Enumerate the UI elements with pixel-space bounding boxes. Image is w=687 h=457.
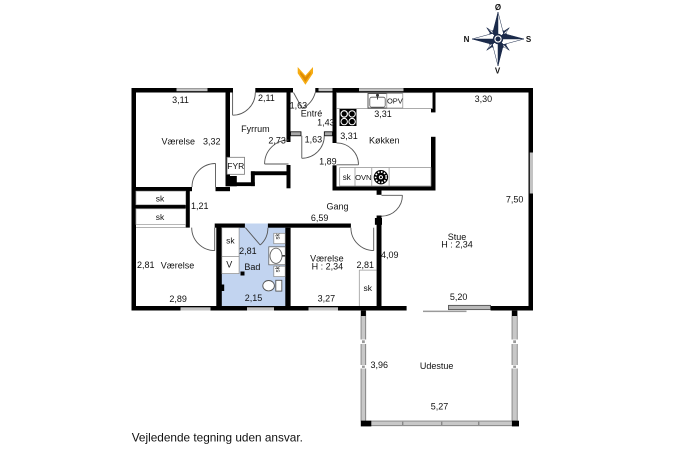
- svg-text:5,20: 5,20: [450, 292, 468, 302]
- svg-text:4,09: 4,09: [381, 250, 399, 260]
- svg-text:sk: sk: [276, 233, 282, 240]
- svg-text:2,15: 2,15: [245, 293, 263, 303]
- svg-text:sk: sk: [226, 235, 235, 245]
- svg-text:1,63: 1,63: [290, 100, 308, 110]
- svg-text:N: N: [464, 35, 470, 44]
- svg-text:V: V: [495, 67, 501, 76]
- svg-text:2,81: 2,81: [239, 246, 257, 256]
- svg-text:sk: sk: [156, 212, 165, 222]
- svg-text:3,11: 3,11: [172, 95, 189, 105]
- svg-text:Køkken: Køkken: [369, 136, 400, 146]
- svg-text:S: S: [526, 35, 532, 44]
- svg-text:Fyrrum: Fyrrum: [241, 124, 270, 134]
- svg-text:3,96: 3,96: [371, 360, 389, 370]
- svg-text:Bad: Bad: [244, 262, 260, 272]
- svg-text:sk: sk: [363, 283, 372, 293]
- svg-text:H : 2,34: H : 2,34: [312, 262, 344, 272]
- svg-text:sk: sk: [276, 265, 282, 272]
- svg-text:sk: sk: [156, 193, 165, 203]
- svg-text:sk: sk: [343, 173, 352, 182]
- svg-text:2,89: 2,89: [169, 294, 187, 304]
- svg-text:3,27: 3,27: [318, 293, 336, 303]
- svg-text:Ø: Ø: [495, 3, 501, 12]
- svg-text:3,30: 3,30: [475, 94, 493, 104]
- svg-text:5,27: 5,27: [431, 402, 449, 412]
- svg-text:7,50: 7,50: [506, 195, 524, 205]
- svg-text:1,89: 1,89: [319, 156, 337, 166]
- svg-text:V: V: [226, 260, 232, 270]
- svg-text:OPV: OPV: [387, 96, 403, 105]
- svg-text:Gang: Gang: [326, 202, 348, 212]
- svg-text:3,31: 3,31: [374, 109, 392, 119]
- svg-text:1,43: 1,43: [317, 117, 335, 127]
- svg-text:2,11: 2,11: [258, 93, 275, 103]
- svg-text:FYR: FYR: [227, 161, 244, 171]
- svg-text:6,59: 6,59: [311, 213, 329, 223]
- svg-text:3,32: 3,32: [203, 136, 221, 146]
- svg-text:OVN: OVN: [355, 173, 371, 182]
- svg-text:Værelse: Værelse: [161, 136, 195, 146]
- svg-text:H : 2,34: H : 2,34: [441, 240, 473, 250]
- svg-text:1,21: 1,21: [191, 201, 209, 211]
- svg-text:2,81: 2,81: [137, 260, 155, 270]
- svg-text:1,63: 1,63: [305, 135, 323, 145]
- svg-text:3,31: 3,31: [340, 131, 358, 141]
- svg-text:Udestue: Udestue: [420, 361, 454, 371]
- svg-text:2,81: 2,81: [357, 260, 375, 270]
- svg-text:2,73: 2,73: [268, 136, 286, 146]
- svg-text:Værelse: Værelse: [161, 261, 195, 271]
- svg-text:Vejledende tegning uden ansvar: Vejledende tegning uden ansvar.: [132, 430, 303, 444]
